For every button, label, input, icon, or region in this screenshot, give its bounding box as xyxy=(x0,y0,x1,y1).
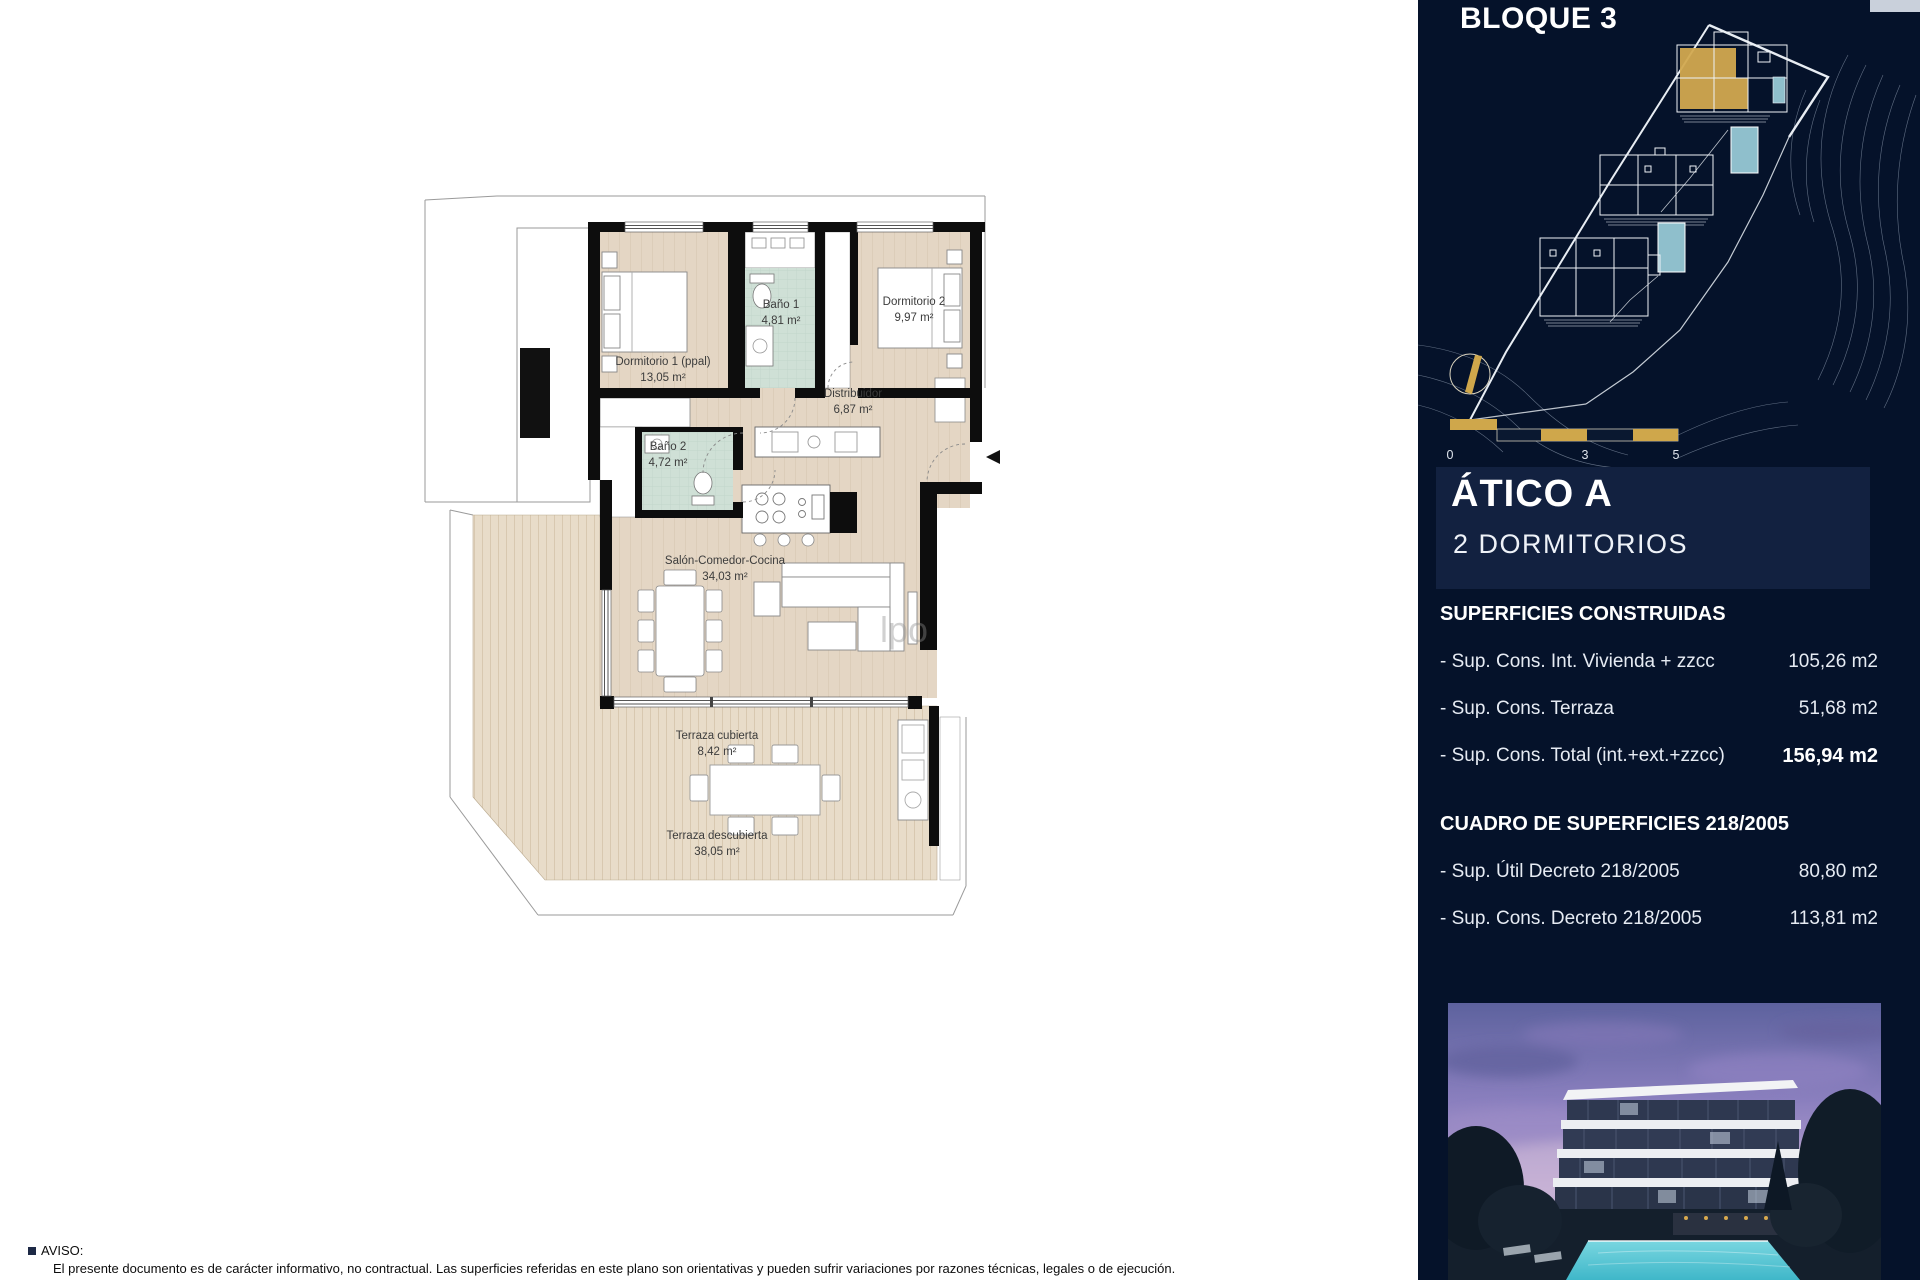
site-edge-fragment xyxy=(1870,0,1920,12)
room-area: 4,72 m² xyxy=(649,457,688,469)
unit-title: ÁTICO A xyxy=(1451,473,1613,516)
cuadro-heading: CUADRO DE SUPERFICIES 218/2005 xyxy=(1440,813,1789,836)
scale-label-0: 0 xyxy=(1447,448,1454,462)
pool xyxy=(1566,1241,1800,1280)
building-render-photo xyxy=(1448,1003,1881,1280)
superficies-row: - Sup. Cons. Int. Vivienda + zzcc 105,26… xyxy=(1440,651,1878,673)
room-label: Terraza cubierta xyxy=(676,730,759,742)
row-label: - Sup. Cons. Total (int.+ext.+zzcc) xyxy=(1440,745,1725,768)
row-label: - Sup. Cons. Decreto 218/2005 xyxy=(1440,908,1702,930)
scale-label-5: 5 xyxy=(1673,448,1680,462)
room-label: Terraza descubierta xyxy=(667,830,769,842)
disclaimer-text: El presente documento es de carácter inf… xyxy=(53,1261,1175,1277)
disclaimer-title: AVISO: xyxy=(41,1243,83,1258)
unit-subtitle: 2 DORMITORIOS xyxy=(1453,529,1688,560)
room-label: Baño 2 xyxy=(650,441,686,453)
building-middle xyxy=(1600,148,1713,225)
site-plan: 0 3 5 xyxy=(1418,0,1920,470)
room-label: Baño 1 xyxy=(763,299,799,311)
superficies-row: - Sup. Cons. Terraza 51,68 m2 xyxy=(1440,698,1878,720)
shaft xyxy=(520,348,550,438)
block-title: BLOQUE 3 xyxy=(1460,2,1617,36)
pool-middle xyxy=(1658,223,1685,272)
cuadro-row: - Sup. Cons. Decreto 218/2005 113,81 m2 xyxy=(1440,908,1878,930)
row-value: 156,94 m2 xyxy=(1782,745,1878,768)
row-label: - Sup. Cons. Terraza xyxy=(1440,698,1614,720)
sidebar: 0 3 5 BLOQUE 3 ÁTICO A 2 DORMITORIOS SUP… xyxy=(1418,0,1920,1280)
room-area: 9,97 m² xyxy=(895,312,934,324)
room-area: 34,03 m² xyxy=(702,571,748,583)
outdoor-kitchen xyxy=(898,720,928,820)
disclaimer: AVISO: El presente documento es de carác… xyxy=(28,1243,1175,1277)
room-label: Dormitorio 2 xyxy=(883,296,946,308)
floor-plan: lpo Dormitorio 1 (ppal) 13,05 m² Baño 1 … xyxy=(410,180,1010,960)
compass-icon xyxy=(1450,354,1490,394)
watermark-text: lpo xyxy=(880,609,928,650)
row-label: - Sup. Útil Decreto 218/2005 xyxy=(1440,861,1680,883)
superficies-heading: SUPERFICIES CONSTRUIDAS xyxy=(1440,603,1726,626)
unit-title-panel: ÁTICO A 2 DORMITORIOS xyxy=(1436,467,1870,589)
room-area: 13,05 m² xyxy=(640,372,686,384)
building-bottom xyxy=(1540,238,1660,326)
scale-label-3: 3 xyxy=(1582,448,1589,462)
entrance-arrow-icon xyxy=(986,450,1000,464)
cuadro-row: - Sup. Útil Decreto 218/2005 80,80 m2 xyxy=(1440,861,1878,883)
room-label: Salón-Comedor-Cocina xyxy=(665,555,786,567)
room-area: 38,05 m² xyxy=(694,846,740,858)
pool-top xyxy=(1731,127,1758,173)
building-bloque3 xyxy=(1677,32,1787,122)
room-area: 4,81 m² xyxy=(762,315,801,327)
square-bullet-icon xyxy=(28,1247,36,1255)
row-value: 105,26 m2 xyxy=(1788,651,1878,673)
row-value: 51,68 m2 xyxy=(1799,698,1878,720)
disclaimer-title-line: AVISO: xyxy=(28,1243,1175,1259)
room-area: 6,87 m² xyxy=(834,404,873,416)
room-area: 8,42 m² xyxy=(698,746,737,758)
superficies-row-total: - Sup. Cons. Total (int.+ext.+zzcc) 156,… xyxy=(1440,745,1878,768)
row-value: 80,80 m2 xyxy=(1799,861,1878,883)
row-label: - Sup. Cons. Int. Vivienda + zzcc xyxy=(1440,651,1715,673)
row-value: 113,81 m2 xyxy=(1790,908,1878,930)
room-label: Distribuidor xyxy=(824,388,882,400)
kitchen-stools xyxy=(754,534,814,546)
room-label: Dormitorio 1 (ppal) xyxy=(615,356,710,368)
